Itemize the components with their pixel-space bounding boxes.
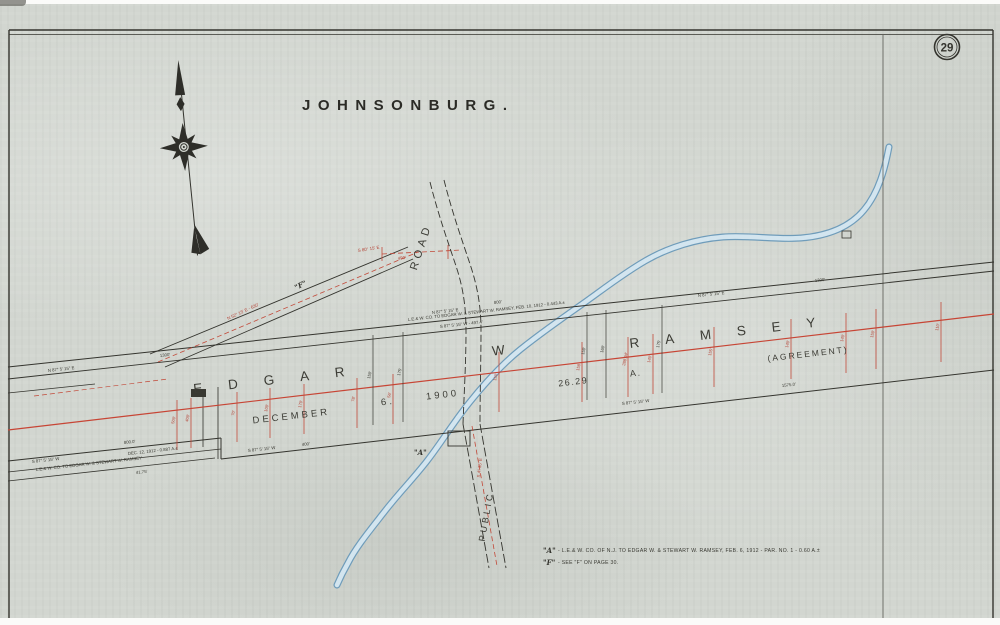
owner-middle-initial: W bbox=[491, 342, 506, 358]
note-f-symbol: "F" bbox=[543, 558, 555, 567]
svg-text:150': 150' bbox=[869, 329, 876, 338]
svg-text:100': 100' bbox=[263, 403, 270, 412]
se-length: 1575.0' bbox=[782, 381, 797, 388]
crossing-ref-label: "A" bbox=[414, 448, 427, 457]
spur-bearing: N 52° 15' E - 630' bbox=[226, 302, 259, 321]
note-a-symbol: "A" bbox=[543, 546, 556, 555]
svg-text:175': 175' bbox=[396, 367, 403, 376]
svg-text:158': 158' bbox=[575, 362, 582, 371]
parcel-area-unit: A. bbox=[629, 367, 642, 378]
note-a-text: - L.E.& W. CO. OF N.J. TO EDGAR W. & STE… bbox=[558, 548, 820, 554]
svg-text:160': 160' bbox=[599, 344, 606, 353]
svg-text:110': 110' bbox=[934, 323, 940, 332]
parcel-date-day: 6. bbox=[380, 396, 395, 409]
svg-text:155': 155' bbox=[707, 347, 714, 356]
owner-last-name: RAMSEY bbox=[629, 312, 842, 351]
svg-text:150': 150' bbox=[492, 372, 499, 381]
public-road-bearing: S 4° 35' E bbox=[476, 458, 483, 478]
svg-text:140': 140' bbox=[839, 333, 846, 342]
spur-stub-bearing: S 80° 15' E bbox=[357, 245, 379, 253]
note-f-text: - SEE "F" ON PAGE 30. bbox=[558, 560, 619, 566]
reference-notes: "A" - L.E.& W. CO. OF N.J. TO EDGAR W. &… bbox=[543, 546, 820, 567]
svg-text:140': 140' bbox=[784, 339, 791, 348]
svg-text:70': 70' bbox=[230, 410, 236, 417]
svg-text:400': 400' bbox=[184, 413, 191, 422]
public-road-label: PUBLIC bbox=[477, 491, 496, 542]
ne-length: 1300' bbox=[815, 277, 826, 283]
sliver-bearing: S 87° 5' 15" W bbox=[32, 456, 61, 464]
band-length: 800' bbox=[494, 299, 503, 305]
survey-map-sheet: "F" N 52° 15' E - 630' S 80° 15' E 490' … bbox=[0, 0, 1000, 625]
sliver-dim: 41.75' bbox=[136, 469, 148, 475]
creek bbox=[337, 147, 889, 585]
sheet-number: 29 bbox=[941, 43, 954, 55]
road: ROAD bbox=[408, 180, 481, 424]
compass-rose bbox=[155, 59, 213, 257]
ne-bearing: N 87° 5' 15" E bbox=[698, 290, 725, 298]
owner-first-name: EDGAR bbox=[193, 361, 372, 396]
svg-text:140': 140' bbox=[646, 354, 653, 363]
spur-stub-length: 490' bbox=[397, 255, 406, 261]
s-mid-bearing: S 87° 5' 15" W bbox=[248, 445, 277, 453]
svg-text:78': 78' bbox=[350, 396, 356, 403]
parcel-area-value: 26.29 bbox=[558, 375, 589, 388]
sliver-length: 800.0' bbox=[124, 439, 136, 445]
map-drawing: "F" N 52° 15' E - 630' S 80° 15' E 490' … bbox=[0, 0, 1000, 625]
svg-text:170': 170' bbox=[297, 399, 304, 408]
svg-text:150': 150' bbox=[580, 346, 587, 355]
shaft-diamond-icon bbox=[176, 97, 185, 111]
parcel-date-year: 1900 bbox=[426, 388, 460, 403]
map-border bbox=[9, 30, 993, 618]
agreement-label: (AGREEMENT) bbox=[767, 344, 849, 363]
road-label: ROAD bbox=[408, 222, 434, 271]
sheet-number-badge: 29 bbox=[935, 35, 960, 60]
north-arrowhead-icon bbox=[173, 60, 185, 95]
map-title: JOHNSONBURG. bbox=[302, 97, 515, 114]
se-bearing: S 87° 5' 15" W bbox=[622, 398, 651, 406]
svg-text:500': 500' bbox=[170, 415, 177, 424]
s-mid-length: 400' bbox=[302, 441, 311, 447]
building-footprint bbox=[842, 231, 851, 238]
